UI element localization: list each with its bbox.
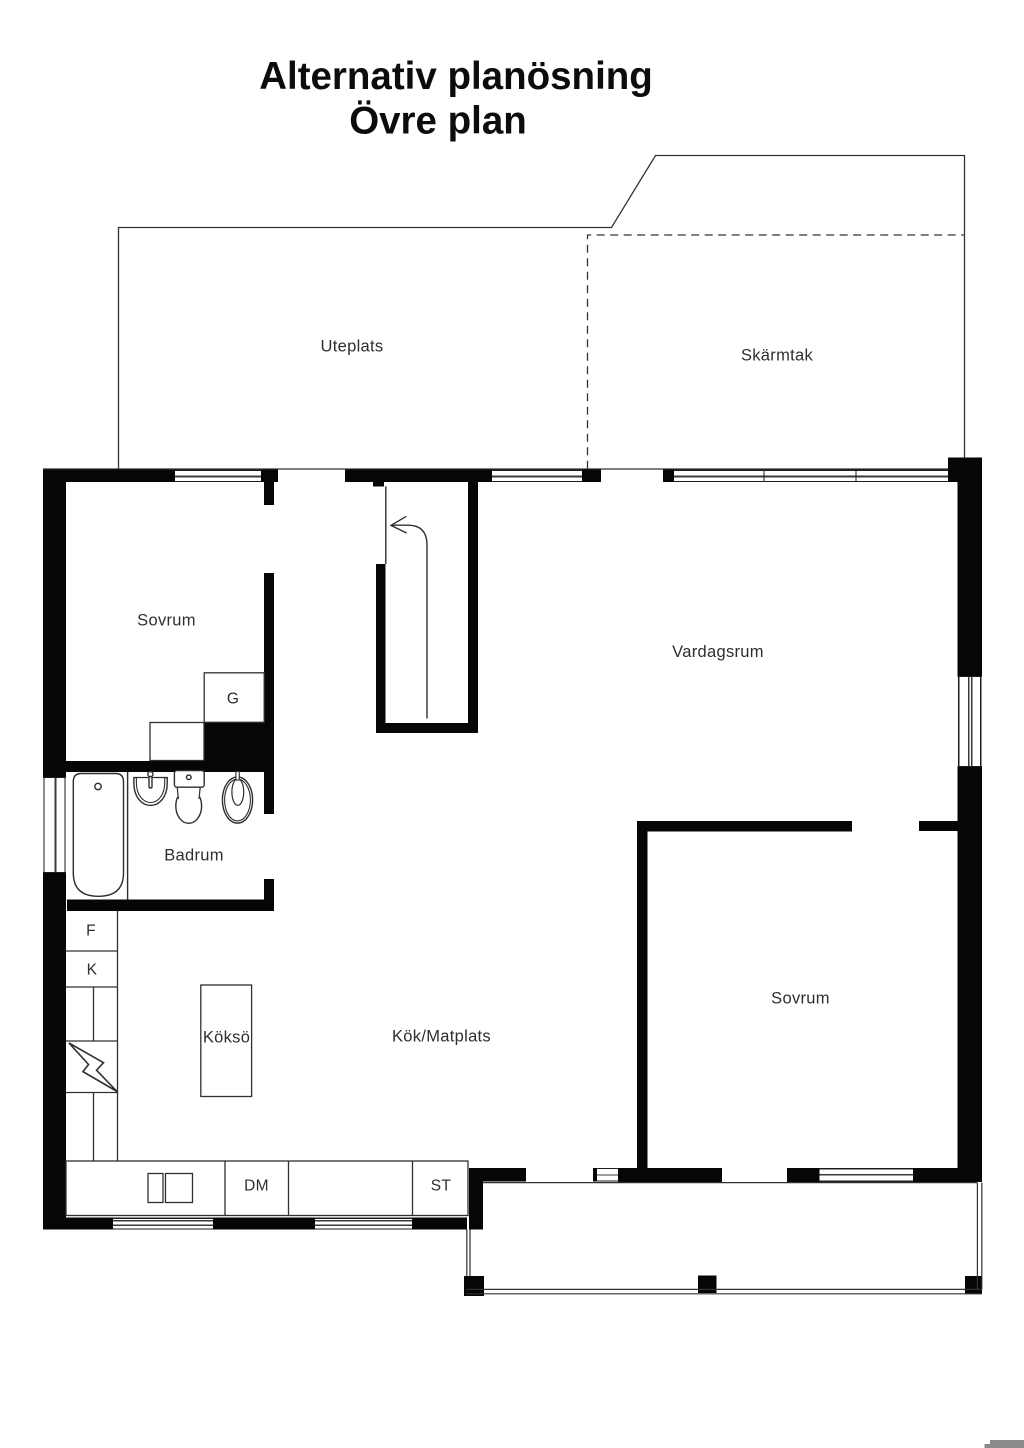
svg-text:Sovrum: Sovrum <box>137 612 196 630</box>
svg-text:F: F <box>86 923 96 940</box>
svg-text:Alternativ planösning: Alternativ planösning <box>259 55 653 98</box>
svg-text:DM: DM <box>244 1178 269 1195</box>
svg-text:Kök/Matplats: Kök/Matplats <box>392 1028 491 1046</box>
svg-text:Vardagsrum: Vardagsrum <box>672 643 764 661</box>
svg-text:Övre plan: Övre plan <box>349 100 527 143</box>
svg-text:K: K <box>87 962 98 979</box>
svg-text:ST: ST <box>431 1178 452 1195</box>
svg-text:Skärmtak: Skärmtak <box>741 347 814 365</box>
svg-text:Sovrum: Sovrum <box>771 990 830 1008</box>
svg-text:Badrum: Badrum <box>164 847 224 865</box>
svg-text:G: G <box>227 691 239 708</box>
svg-text:Köksö: Köksö <box>203 1029 250 1047</box>
svg-text:Uteplats: Uteplats <box>321 338 384 356</box>
